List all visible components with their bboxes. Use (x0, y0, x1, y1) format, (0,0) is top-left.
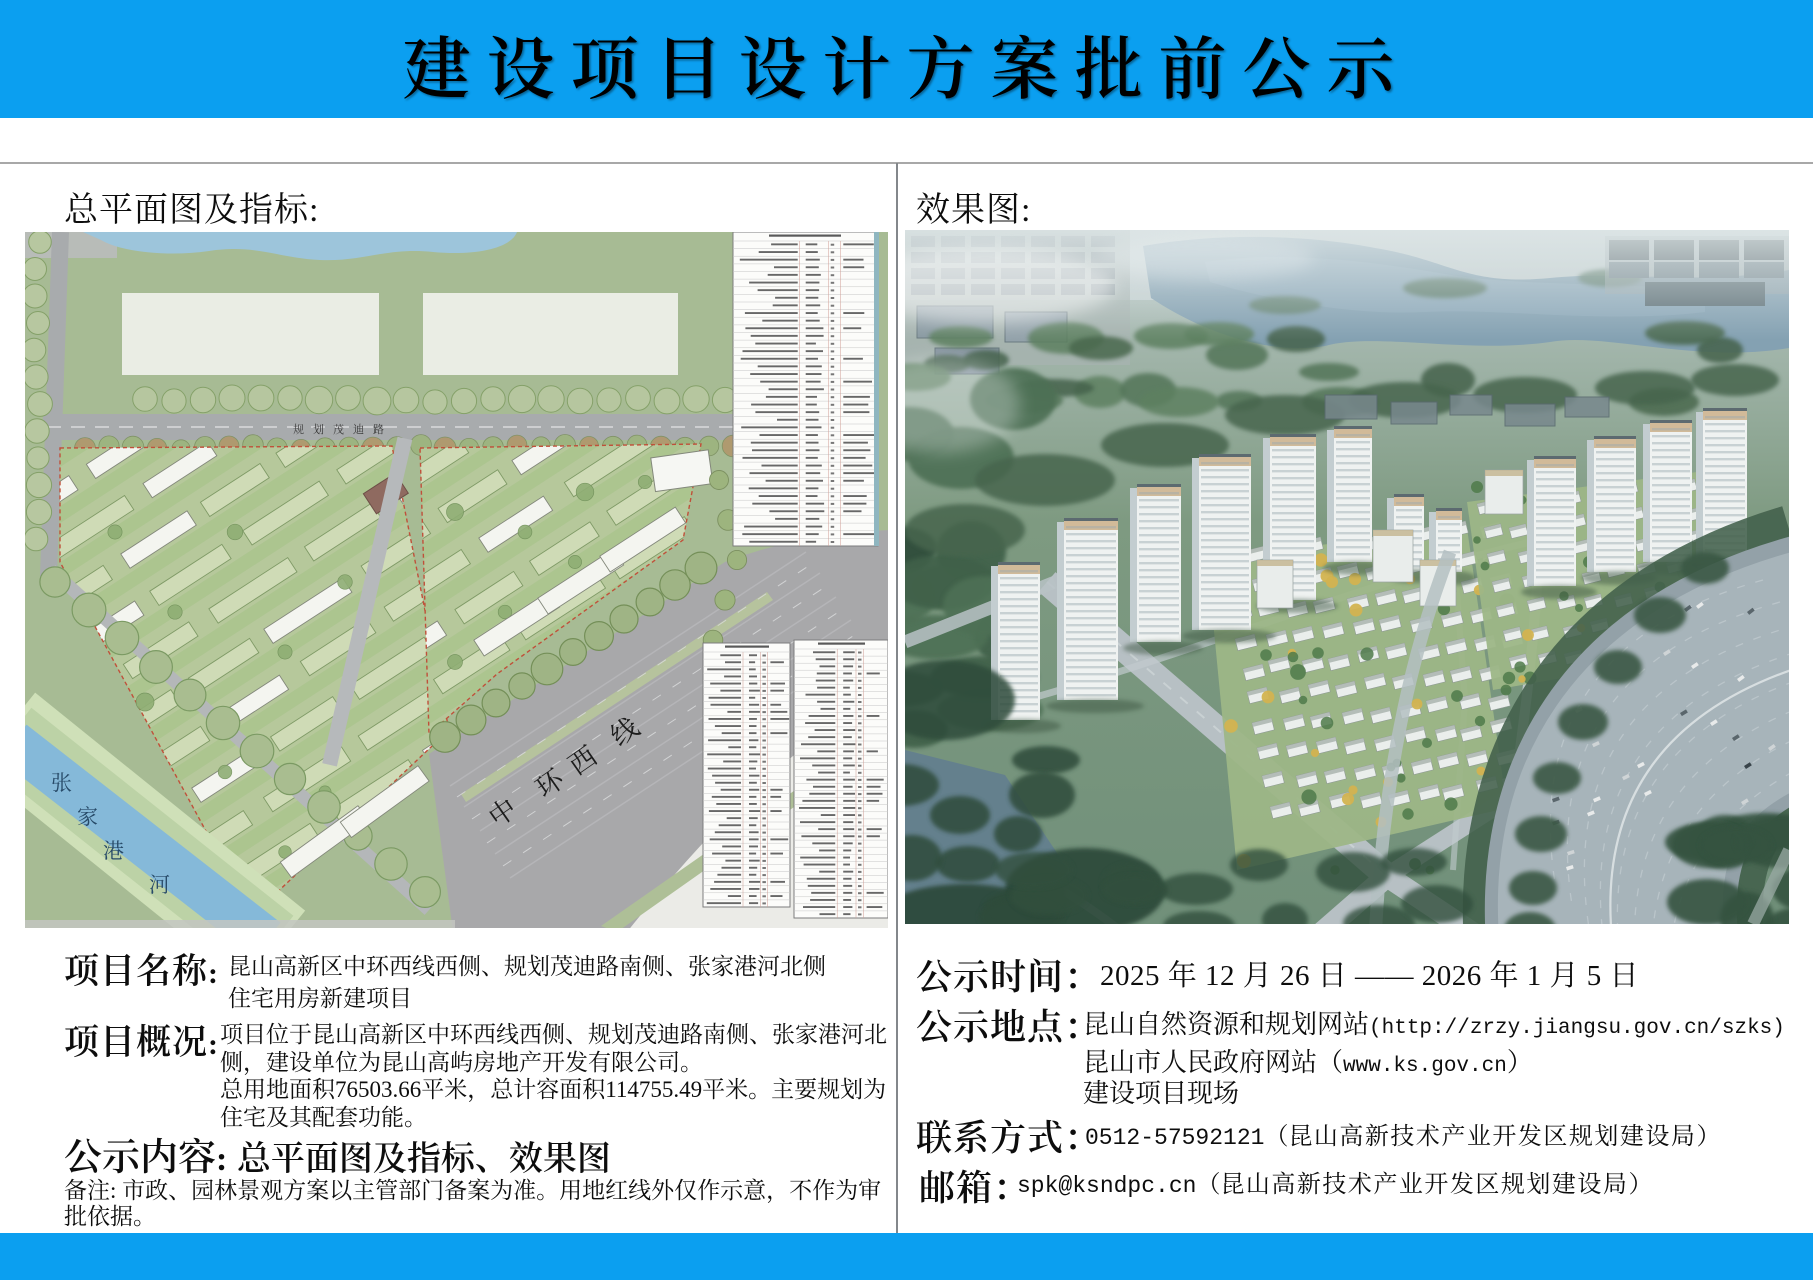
svg-text:规划茂迪路: 规划茂迪路 (293, 422, 393, 436)
svg-text:家: 家 (77, 805, 98, 829)
svg-text:张: 张 (51, 771, 72, 795)
svg-text:港: 港 (103, 839, 124, 863)
svg-text:河: 河 (149, 873, 170, 897)
